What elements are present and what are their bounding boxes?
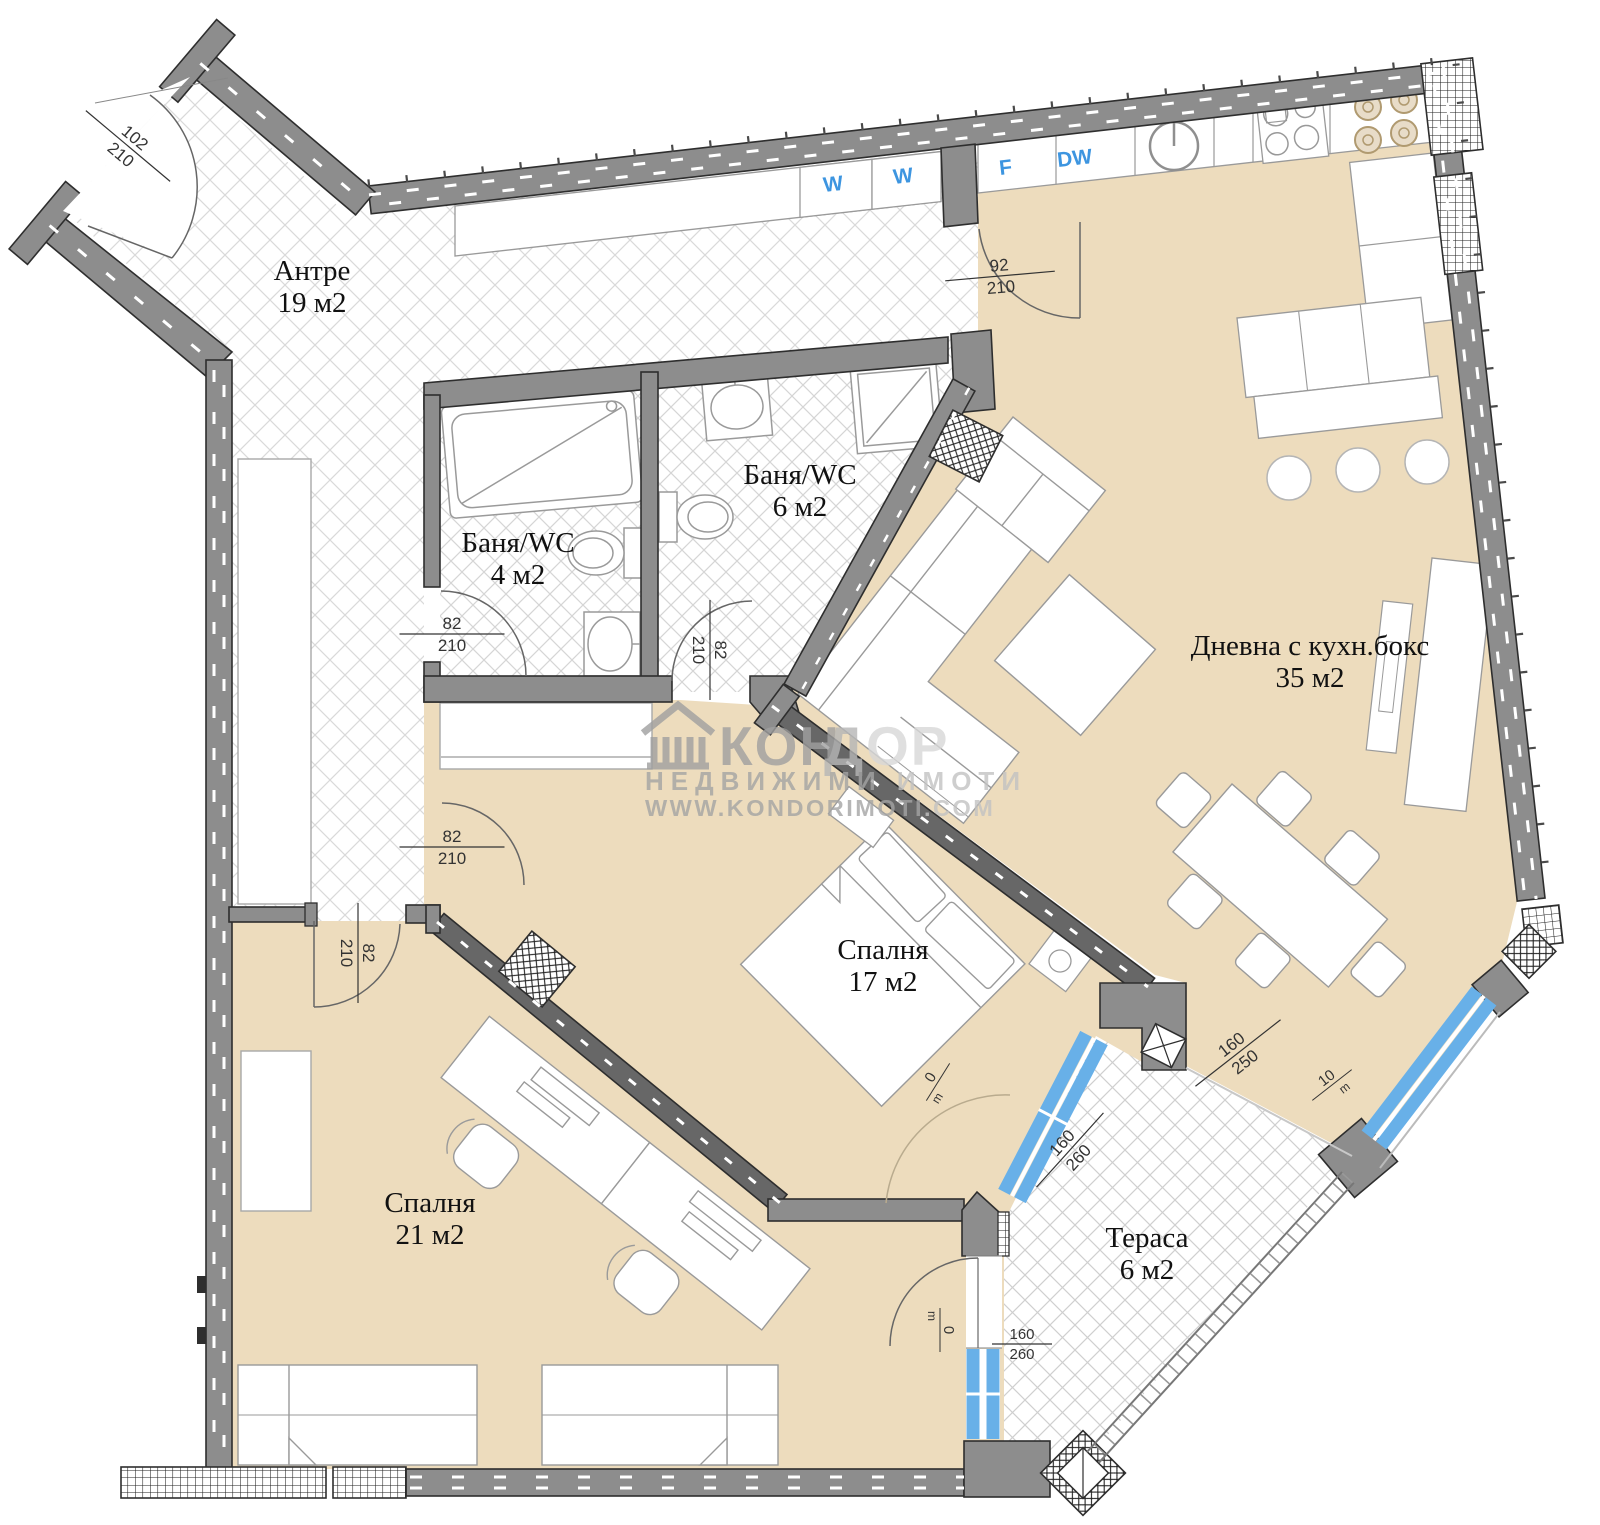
svg-text:6 м2: 6 м2	[1120, 1254, 1175, 1286]
svg-text:6 м2: 6 м2	[773, 491, 828, 523]
svg-text:Антре: Антре	[274, 255, 351, 287]
svg-text:160: 160	[1009, 1326, 1034, 1343]
svg-text:Спалня: Спалня	[837, 934, 928, 966]
svg-text:210: 210	[689, 636, 708, 664]
svg-text:4 м2: 4 м2	[491, 559, 546, 591]
svg-text:17 м2: 17 м2	[848, 966, 917, 998]
svg-text:НЕДВИЖИМИ ИМОТИ: НЕДВИЖИМИ ИМОТИ	[645, 766, 1027, 796]
svg-text:0: 0	[940, 1326, 957, 1334]
svg-text:35 м2: 35 м2	[1275, 662, 1344, 694]
svg-text:210: 210	[986, 277, 1016, 298]
svg-text:m: m	[925, 1311, 939, 1321]
svg-text:19 м2: 19 м2	[277, 287, 346, 319]
svg-text:Дневна с кухн.бокс: Дневна с кухн.бокс	[1191, 630, 1430, 662]
svg-text:21 м2: 21 м2	[395, 1219, 464, 1251]
svg-text:W: W	[822, 172, 844, 197]
svg-text:210: 210	[438, 849, 466, 868]
svg-text:DW: DW	[1056, 145, 1094, 172]
svg-text:210: 210	[337, 939, 356, 967]
svg-text:Баня/WC: Баня/WC	[461, 527, 574, 559]
svg-text:82: 82	[711, 641, 730, 660]
svg-text:92: 92	[989, 255, 1010, 276]
svg-text:W: W	[892, 164, 914, 189]
svg-text:210: 210	[438, 636, 466, 655]
svg-text:WWW.KONDORIMOTI.COM: WWW.KONDORIMOTI.COM	[645, 795, 995, 821]
svg-text:260: 260	[1009, 1346, 1034, 1363]
svg-text:82: 82	[359, 944, 378, 963]
svg-text:82: 82	[443, 614, 462, 633]
svg-text:82: 82	[443, 827, 462, 846]
svg-text:Тераса: Тераса	[1106, 1222, 1189, 1254]
svg-text:Баня/WC: Баня/WC	[743, 459, 856, 491]
svg-text:Спалня: Спалня	[384, 1187, 475, 1219]
